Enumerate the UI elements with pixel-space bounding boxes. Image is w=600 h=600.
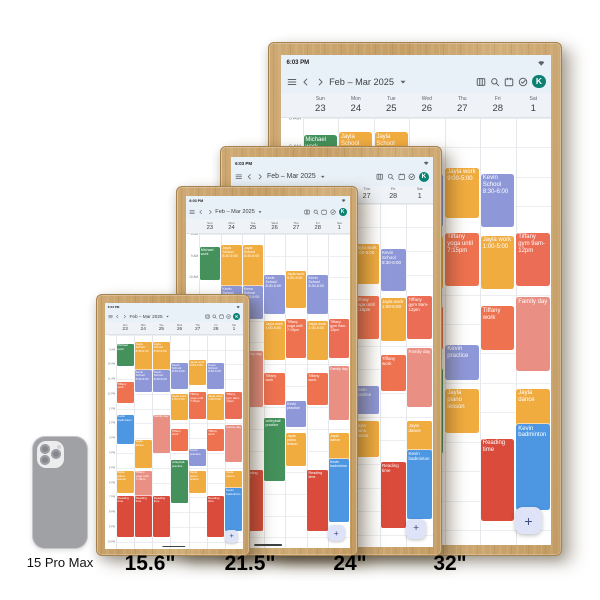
day-header[interactable]: Thu27 xyxy=(189,324,207,333)
days-row: Sun23Mon24Tue25Wed26Thu27Fri28Sat1 xyxy=(186,219,350,234)
week-view-icon[interactable] xyxy=(476,77,486,87)
day-number: 27 xyxy=(293,225,299,231)
event-block[interactable]: Tiffany work xyxy=(381,355,406,391)
plus-icon: + xyxy=(413,523,419,534)
status-bar: 6:03 PM xyxy=(186,196,350,205)
chevron-left-icon[interactable] xyxy=(115,314,120,319)
caret-down-icon[interactable] xyxy=(319,173,327,181)
tasks-icon[interactable] xyxy=(518,77,528,87)
status-bar: 6:03 PM xyxy=(231,157,433,168)
event-block[interactable]: Jayla work 1:00-5:00 xyxy=(381,298,406,341)
event-block[interactable]: Kevin School 8:30-6:00 xyxy=(264,275,284,314)
event-block[interactable]: Tiffany work xyxy=(264,373,284,405)
monitor-15-6-inch: 6:03 PMFeb – Mar 2025KSun23Mon24Tue25Wed… xyxy=(96,294,250,556)
camera-lens-icon xyxy=(40,444,50,454)
chevron-left-icon[interactable] xyxy=(198,209,204,215)
event-block[interactable]: Jayla School 8:30-6:00 xyxy=(243,245,263,286)
add-event-button[interactable]: + xyxy=(515,507,542,534)
wifi-icon xyxy=(537,59,546,68)
week-view-icon[interactable] xyxy=(205,314,210,319)
screen-15-6-inch: 6:03 PMFeb – Mar 2025KSun23Mon24Tue25Wed… xyxy=(105,303,243,549)
event-block[interactable]: Tiffany gym 9am-12pm xyxy=(225,392,242,419)
caret-down-icon[interactable] xyxy=(165,314,170,319)
event-block[interactable]: Kevin School 8:30-6:00 xyxy=(307,275,327,314)
day-name: Mon xyxy=(351,96,361,102)
time-label: 12 PM xyxy=(105,392,115,395)
add-event-button[interactable]: + xyxy=(328,525,344,541)
date-icon[interactable] xyxy=(219,314,224,319)
tasks-icon[interactable] xyxy=(226,314,231,319)
day-number: 25 xyxy=(386,103,397,114)
day-name: Mon xyxy=(228,221,234,225)
time-label: 10 AM xyxy=(186,276,198,280)
add-event-button[interactable]: + xyxy=(225,530,239,544)
day-number: 1 xyxy=(233,327,236,332)
day-header[interactable]: Fri28 xyxy=(307,221,329,232)
chevron-left-icon[interactable] xyxy=(301,77,311,87)
day-header[interactable]: Sat1 xyxy=(516,96,551,114)
status-time: 6:03 PM xyxy=(108,305,120,309)
add-event-button[interactable]: + xyxy=(406,519,426,539)
home-indicator xyxy=(254,544,282,546)
status-time: 6:03 PM xyxy=(235,161,252,166)
event-block[interactable]: Reading time xyxy=(117,496,134,537)
chevron-right-icon[interactable] xyxy=(122,314,127,319)
event-block[interactable]: Reading time xyxy=(381,462,406,528)
avatar[interactable]: K xyxy=(233,313,240,320)
home-indicator xyxy=(162,546,185,548)
day-number: 24 xyxy=(141,327,146,332)
hour-line xyxy=(199,234,350,235)
day-header[interactable]: Fri28 xyxy=(480,96,515,114)
day-header[interactable]: Sun23 xyxy=(199,221,221,232)
day-name: Wed xyxy=(422,96,432,102)
day-number: 26 xyxy=(422,103,433,114)
event-block[interactable]: Tiffany work xyxy=(481,306,514,350)
chevron-right-icon[interactable] xyxy=(256,173,264,181)
event-block[interactable]: Tiffany work xyxy=(307,373,327,405)
day-name: Fri xyxy=(391,187,395,191)
status-time: 6:03 PM xyxy=(189,199,203,203)
event-block[interactable]: Jayla work 9:00-5:00 xyxy=(286,271,306,308)
event-block[interactable]: Family day xyxy=(407,348,432,407)
day-name: Sat xyxy=(417,187,423,191)
event-block[interactable]: Tiffany gym 9am-12pm xyxy=(516,233,549,286)
time-label: 8 PM xyxy=(105,511,115,514)
day-header[interactable]: Sat1 xyxy=(225,324,243,333)
time-gutter-spacer xyxy=(105,324,116,333)
day-header[interactable]: Tue25 xyxy=(242,221,264,232)
day-header[interactable]: Sat1 xyxy=(406,187,433,200)
event-block[interactable]: Kevin School 8:30-6:00 xyxy=(481,174,514,227)
status-time: 6:03 PM xyxy=(287,60,310,66)
day-header[interactable]: Tue25 xyxy=(152,324,170,333)
event-block[interactable]: Kevin badminton xyxy=(329,459,349,522)
day-number: 25 xyxy=(159,327,164,332)
event-block[interactable]: Reading time xyxy=(153,496,170,537)
day-header[interactable]: Sun23 xyxy=(116,324,134,333)
day-name: Tue xyxy=(250,221,255,225)
day-number: 27 xyxy=(363,192,371,200)
stage: 6:03 PMFeb – Mar 2025KSun23Mon24Tue25Wed… xyxy=(0,0,600,600)
week-view-icon[interactable] xyxy=(304,209,310,215)
time-label: 1 PM xyxy=(105,407,115,410)
event-block[interactable]: Family day xyxy=(153,415,170,453)
days-row: Sun23Mon24Tue25Wed26Thu27Fri28Sat1 xyxy=(105,322,243,334)
calendar-toolbar: Feb – Mar 2025K xyxy=(105,311,243,323)
day-header[interactable]: Sat1 xyxy=(328,221,350,232)
event-block[interactable]: Tiffany work xyxy=(207,429,224,451)
time-label: 7 PM xyxy=(105,496,115,499)
event-block[interactable]: Jayla work 9:00-5:00 xyxy=(189,360,206,385)
event-block[interactable]: Kevin School 8:30-6:00 xyxy=(135,370,152,392)
day-number: 23 xyxy=(207,225,213,231)
time-label: 9 AM xyxy=(105,348,115,351)
chevron-left-icon[interactable] xyxy=(246,173,254,181)
menu-icon[interactable] xyxy=(108,314,113,319)
event-block[interactable]: Jayla School 8:30-6:00 xyxy=(135,342,152,370)
day-name: Wed xyxy=(271,221,277,225)
day-number: 27 xyxy=(457,103,468,114)
event-block[interactable]: Tiffany yoga until 7:15pm xyxy=(286,319,306,358)
time-gutter-spacer xyxy=(281,96,303,114)
event-block[interactable]: Tiffany gym 9am-12pm xyxy=(407,296,432,339)
day-name: Sat xyxy=(337,221,342,225)
calendar-title: Feb – Mar 2025 xyxy=(329,77,394,87)
event-block[interactable]: Tiffany yoga until 7:15pm xyxy=(445,233,478,286)
time-label: 10 PM xyxy=(105,540,115,543)
calendar-toolbar: Feb – Mar 2025K xyxy=(186,205,350,219)
day-header[interactable]: Mon24 xyxy=(338,96,373,114)
time-label: 3 PM xyxy=(105,437,115,440)
day-header[interactable]: Wed26 xyxy=(264,221,286,232)
event-block[interactable]: Tiffany yoga until 7:15pm xyxy=(135,471,152,496)
event-block[interactable]: Kevin School 8:30-6:00 xyxy=(207,363,224,390)
event-block[interactable]: Jayla dance xyxy=(135,440,152,468)
event-block[interactable]: Kevin badminton xyxy=(407,450,432,519)
day-name: Thu xyxy=(458,96,467,102)
menu-icon[interactable] xyxy=(189,209,195,215)
event-block[interactable]: Family day xyxy=(516,297,549,371)
calendar-toolbar: Feb – Mar 2025K xyxy=(231,168,433,185)
status-bar: 6:03 PM xyxy=(105,303,243,311)
event-block[interactable]: Michael work xyxy=(117,344,134,366)
event-block[interactable]: Tiffany work xyxy=(171,429,188,451)
event-block[interactable]: Reading time xyxy=(135,496,152,537)
day-name: Sat xyxy=(529,96,537,102)
time-label: 8 AM xyxy=(186,234,198,236)
camera-lens-icon xyxy=(40,455,50,465)
wifi-icon xyxy=(236,305,240,309)
plus-icon: + xyxy=(524,514,532,528)
day-name: Thu xyxy=(294,221,299,225)
wifi-icon xyxy=(423,160,429,166)
day-name: Tue xyxy=(387,96,395,102)
tasks-icon[interactable] xyxy=(330,209,336,215)
event-block[interactable]: Jayla work 1:00-5:00 xyxy=(264,321,284,360)
event-block[interactable]: volleyball practice xyxy=(171,460,188,503)
caret-down-icon[interactable] xyxy=(257,209,263,215)
plus-icon: + xyxy=(334,529,339,538)
event-block[interactable]: Jayla School 8:30-6:00 xyxy=(153,342,170,370)
time-label: 6 PM xyxy=(105,481,115,484)
event-block[interactable]: Tiffany yoga until 7:15pm xyxy=(189,392,206,419)
avatar[interactable]: K xyxy=(339,208,347,216)
day-header[interactable]: Sun23 xyxy=(303,96,338,114)
event-block[interactable]: Jayla work 9:00-5:00 xyxy=(445,168,478,218)
camera-lens-icon xyxy=(51,449,61,459)
event-block[interactable]: Michael work xyxy=(200,247,220,279)
event-block[interactable]: Jayla School 8:30-6:00 xyxy=(221,245,241,286)
date-icon[interactable] xyxy=(321,209,327,215)
event-block[interactable]: Jayla piano lesson xyxy=(286,433,306,465)
date-icon[interactable] xyxy=(504,77,514,87)
time-label: 9 AM xyxy=(186,254,198,258)
event-block[interactable]: Jayla work 1:00-5:00 xyxy=(307,321,327,360)
day-number: 27 xyxy=(195,327,200,332)
calendar-title: Feb – Mar 2025 xyxy=(267,173,316,180)
day-number: 28 xyxy=(314,225,320,231)
camera-module xyxy=(37,441,64,468)
day-header[interactable]: Tue25 xyxy=(374,96,409,114)
event-block[interactable]: Kevin School 8:30-6:00 xyxy=(153,370,170,392)
event-block[interactable]: Kevin badminton xyxy=(117,415,134,445)
week-grid: 8 AM9 AM10 AM11 AM12 PM1 PM2 PM3 PM4 PM5… xyxy=(105,335,243,549)
day-number: 1 xyxy=(418,192,422,200)
event-block[interactable]: Jayla work 1:00-5:00 xyxy=(207,394,224,421)
camera-flash-icon xyxy=(57,445,61,449)
status-bar: 6:03 PM xyxy=(281,55,551,70)
time-label: 4 PM xyxy=(105,452,115,455)
chevron-right-icon[interactable] xyxy=(207,209,213,215)
time-label: 5 PM xyxy=(105,466,115,469)
calendar-app: 6:03 PMFeb – Mar 2025KSun23Mon24Tue25Wed… xyxy=(105,303,243,549)
day-number: 23 xyxy=(122,327,127,332)
avatar[interactable]: K xyxy=(419,172,429,182)
search-icon[interactable] xyxy=(313,209,319,215)
day-header[interactable]: Fri28 xyxy=(380,187,407,200)
day-header[interactable]: Fri28 xyxy=(207,324,225,333)
size-label-32: 32" xyxy=(390,552,510,576)
day-number: 26 xyxy=(177,327,182,332)
time-label: 8 AM xyxy=(281,118,301,121)
time-gutter-spacer xyxy=(186,221,199,232)
hour-line xyxy=(303,118,551,119)
event-block[interactable]: volleyball practice xyxy=(264,418,284,481)
day-header[interactable]: Wed26 xyxy=(170,324,188,333)
search-icon[interactable] xyxy=(387,173,395,181)
time-label: 2 PM xyxy=(105,422,115,425)
day-number: 24 xyxy=(351,103,362,114)
event-block[interactable]: Tiffany work xyxy=(117,382,134,403)
day-number: 26 xyxy=(271,225,277,231)
event-block[interactable]: Reading time xyxy=(207,496,224,537)
day-number: 24 xyxy=(228,225,234,231)
day-name: Fri xyxy=(316,221,320,225)
event-block[interactable]: Kevin School 8:30-6:00 xyxy=(171,363,188,390)
event-block[interactable]: Kevin practice xyxy=(286,401,306,427)
search-icon[interactable] xyxy=(212,314,217,319)
event-block[interactable]: Kevin practice xyxy=(189,449,206,467)
phone-15-pro-max xyxy=(32,436,88,549)
day-number: 23 xyxy=(315,103,326,114)
event-block[interactable]: Jayla piano lesson xyxy=(445,389,478,433)
day-number: 28 xyxy=(213,327,218,332)
event-block[interactable]: Reading time xyxy=(481,439,514,522)
search-icon[interactable] xyxy=(490,77,500,87)
day-header[interactable]: Thu27 xyxy=(285,221,307,232)
week-view-icon[interactable] xyxy=(376,173,384,181)
day-name: Thu xyxy=(363,187,369,191)
event-block[interactable]: Jayla work 1:00-5:00 xyxy=(171,394,188,421)
event-block[interactable]: Jayla work 1:00-5:00 xyxy=(481,236,514,289)
days-row: Sun23Mon24Tue25Wed26Thu27Fri28Sat1 xyxy=(281,93,551,118)
day-number: 28 xyxy=(492,103,503,114)
avatar[interactable]: K xyxy=(532,75,545,88)
calendar-toolbar: Feb – Mar 2025K xyxy=(281,70,551,93)
day-number: 25 xyxy=(250,225,256,231)
event-block[interactable]: Jayla piano lesson xyxy=(117,471,134,493)
day-header[interactable]: Thu27 xyxy=(445,96,480,114)
day-name: Fri xyxy=(495,96,501,102)
event-block[interactable]: Reading time xyxy=(307,470,327,531)
menu-icon[interactable] xyxy=(235,173,243,181)
event-block[interactable]: Kevin practice xyxy=(445,345,478,380)
menu-icon[interactable] xyxy=(287,77,297,87)
event-block[interactable]: Family day xyxy=(225,425,242,462)
plus-icon: + xyxy=(229,533,233,540)
day-number: 1 xyxy=(531,103,536,114)
time-label: 9 PM xyxy=(105,525,115,528)
day-number: 1 xyxy=(338,225,341,231)
calendar-title: Feb – Mar 2025 xyxy=(215,209,255,215)
date-icon[interactable] xyxy=(398,173,406,181)
day-name: Sun xyxy=(316,96,325,102)
wifi-icon xyxy=(341,198,346,203)
event-block[interactable]: Family day xyxy=(329,366,349,420)
day-header[interactable]: Wed26 xyxy=(409,96,444,114)
event-block[interactable]: Kevin badminton xyxy=(225,488,242,531)
day-number: 28 xyxy=(389,192,397,200)
tasks-icon[interactable] xyxy=(408,173,416,181)
day-header[interactable]: Mon24 xyxy=(134,324,152,333)
day-header[interactable]: Mon24 xyxy=(221,221,243,232)
time-label: 10 AM xyxy=(105,363,115,366)
event-block[interactable]: Tiffany gym 9am-12pm xyxy=(329,319,349,358)
day-name: Sun xyxy=(207,221,212,225)
calendar-title: Feb – Mar 2025 xyxy=(130,314,163,319)
chevron-right-icon[interactable] xyxy=(315,77,325,87)
event-block[interactable]: Jayla piano lesson xyxy=(189,471,206,493)
event-block[interactable]: Kevin School 8:30-6:00 xyxy=(381,249,406,292)
time-label: 8 AM xyxy=(105,335,115,337)
time-label: 11 AM xyxy=(105,378,115,381)
caret-down-icon[interactable] xyxy=(398,77,408,87)
event-block[interactable]: Kevin badminton xyxy=(516,424,549,509)
